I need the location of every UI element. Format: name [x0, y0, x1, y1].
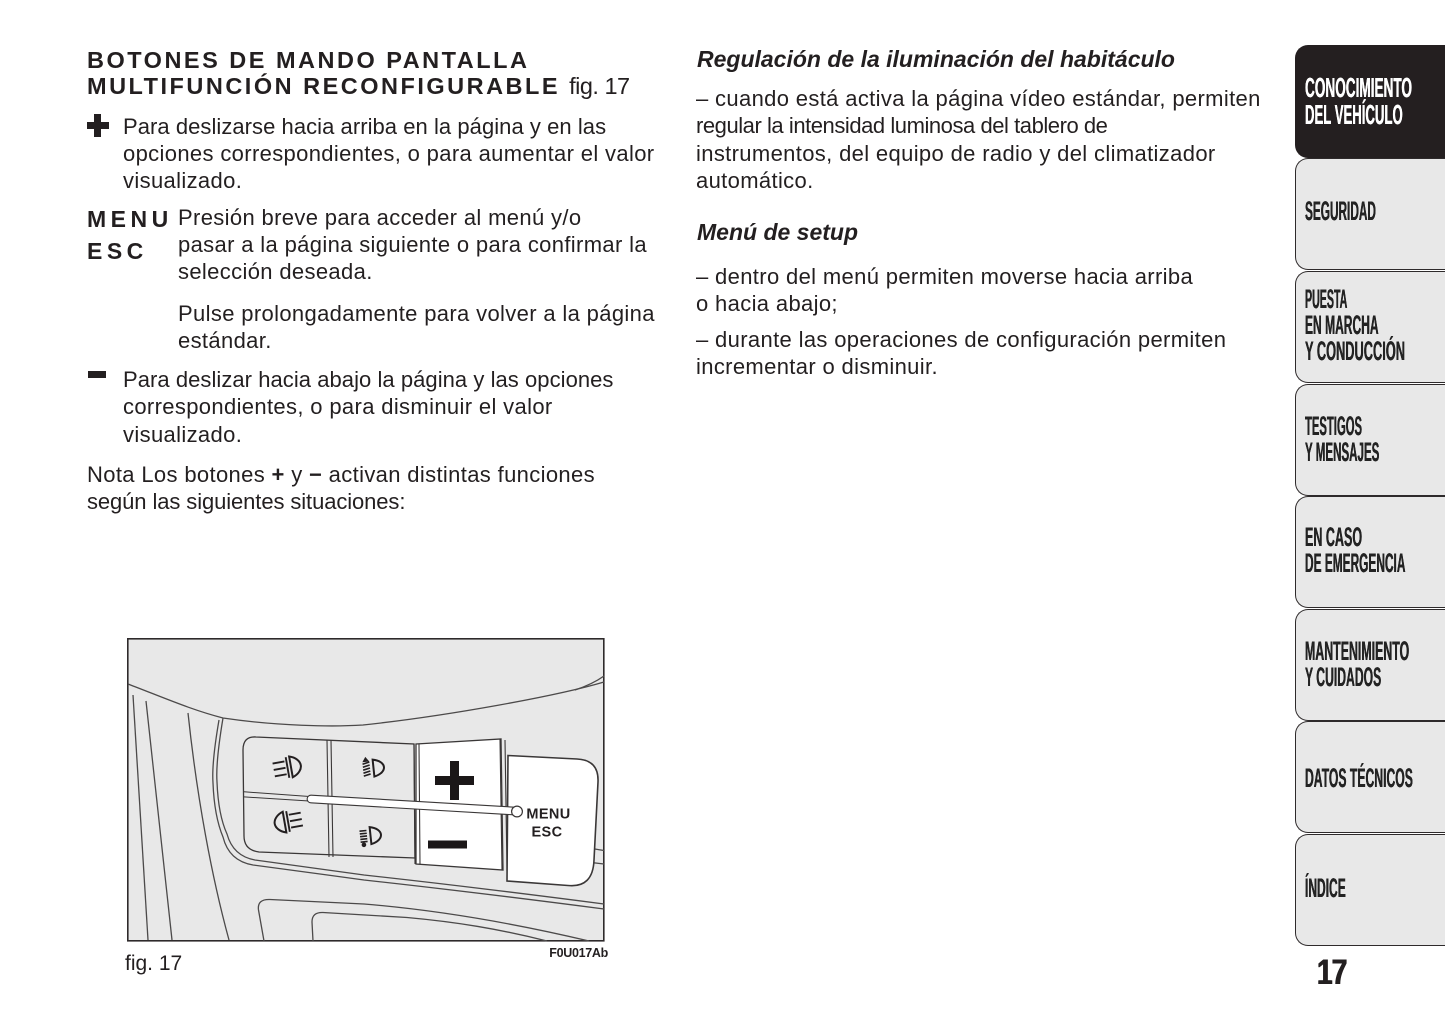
- svg-text:MENU: MENU: [526, 807, 570, 823]
- svg-text:ESC: ESC: [531, 825, 562, 841]
